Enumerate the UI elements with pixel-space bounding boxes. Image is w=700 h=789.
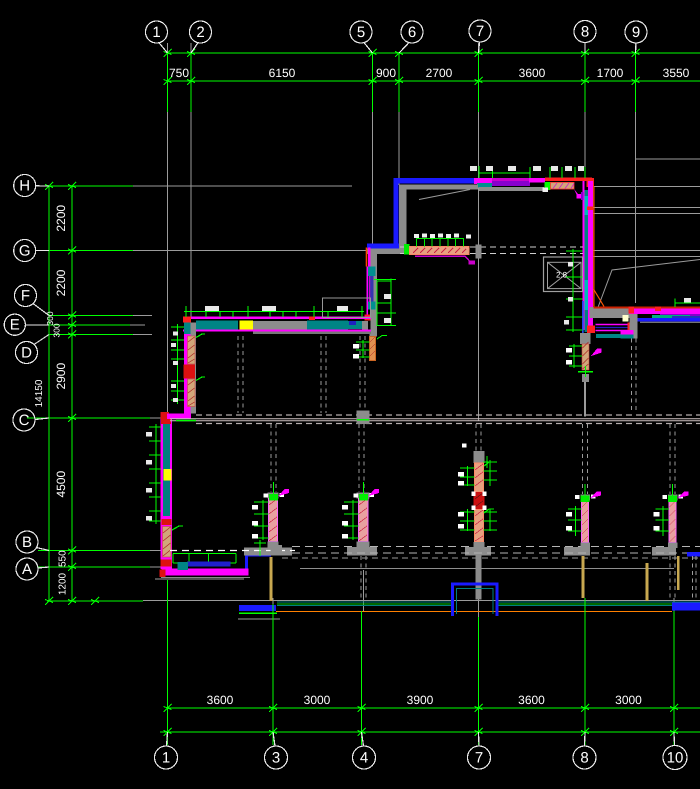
- svg-text:4500: 4500: [54, 471, 68, 498]
- svg-text:H: H: [19, 178, 30, 195]
- svg-text:4: 4: [360, 750, 368, 767]
- svg-text:2700: 2700: [426, 66, 453, 80]
- svg-text:300: 300: [52, 323, 62, 337]
- svg-text:7: 7: [475, 750, 483, 767]
- svg-text:2200: 2200: [54, 205, 68, 232]
- svg-text:D: D: [21, 345, 32, 362]
- svg-text:3600: 3600: [518, 693, 545, 707]
- svg-text:G: G: [19, 243, 31, 260]
- svg-text:8: 8: [580, 750, 588, 767]
- svg-text:3: 3: [272, 750, 280, 767]
- svg-text:E: E: [10, 317, 20, 334]
- svg-text:3600: 3600: [207, 693, 234, 707]
- svg-text:2: 2: [196, 24, 204, 41]
- svg-text:6: 6: [408, 24, 416, 41]
- svg-text:6150: 6150: [269, 66, 296, 80]
- svg-text:C: C: [19, 412, 30, 429]
- svg-text:B: B: [22, 534, 32, 551]
- svg-text:10: 10: [667, 750, 684, 767]
- svg-text:1200: 1200: [58, 572, 69, 595]
- svg-text:F: F: [21, 288, 30, 305]
- svg-text:1: 1: [152, 24, 160, 41]
- svg-text:3550: 3550: [663, 66, 690, 80]
- svg-text:8: 8: [581, 24, 589, 41]
- svg-text:7: 7: [476, 23, 484, 40]
- svg-text:14150: 14150: [34, 379, 45, 407]
- svg-text:9: 9: [632, 24, 640, 41]
- svg-text:3000: 3000: [304, 693, 331, 707]
- svg-text:2.8: 2.8: [556, 271, 568, 280]
- svg-text:3600: 3600: [519, 66, 546, 80]
- svg-text:A: A: [22, 561, 32, 578]
- svg-text:900: 900: [376, 66, 396, 80]
- svg-text:3000: 3000: [615, 693, 642, 707]
- svg-text:1: 1: [162, 750, 170, 767]
- svg-text:750: 750: [169, 66, 189, 80]
- svg-text:1700: 1700: [597, 66, 624, 80]
- svg-text:550: 550: [58, 550, 69, 567]
- svg-text:3900: 3900: [407, 693, 434, 707]
- svg-text:2200: 2200: [54, 269, 68, 296]
- svg-text:5: 5: [357, 24, 365, 41]
- svg-text:2900: 2900: [54, 363, 68, 390]
